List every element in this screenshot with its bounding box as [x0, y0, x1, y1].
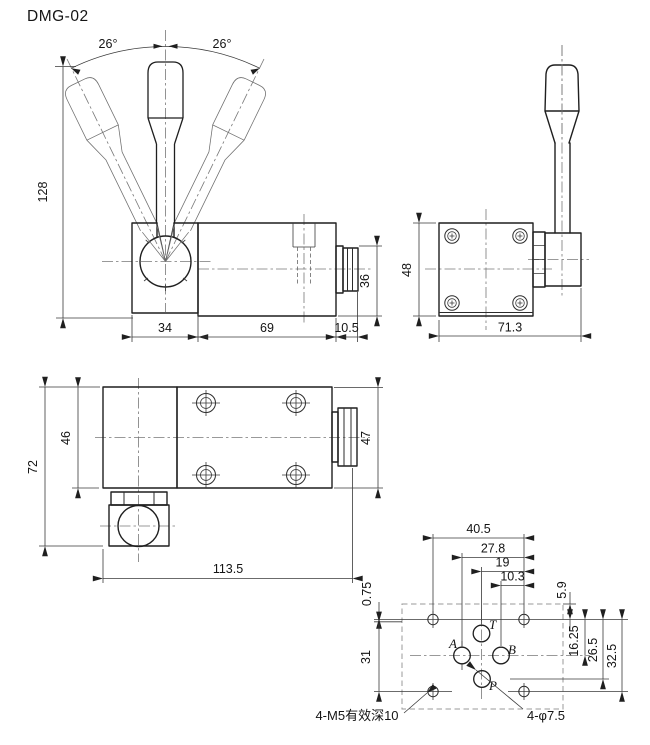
side-view-dimensions: 48 71.3 — [400, 223, 581, 342]
dim-34: 34 — [158, 321, 172, 335]
port-label-p: P — [488, 678, 497, 693]
dim-48: 48 — [400, 263, 414, 277]
dim-113-5: 113.5 — [213, 562, 243, 576]
port-holes: T A B P — [448, 617, 516, 693]
mounting-pattern: T A B P 40.5 27.8 19 10.3 0.75 31 5.9 — [315, 522, 628, 723]
bolt-hole — [282, 462, 310, 488]
bolt-hole — [282, 390, 310, 416]
dim-31: 31 — [359, 650, 373, 664]
dim-69: 69 — [260, 321, 274, 335]
dim-40-5: 40.5 — [466, 522, 490, 536]
side-view-outline — [439, 45, 581, 316]
dim-19: 19 — [496, 556, 510, 570]
dim-47: 47 — [359, 431, 373, 445]
dim-10-3: 10.3 — [500, 570, 524, 584]
angle-label-left: 26° — [99, 37, 118, 51]
top-view-bolt-holes — [192, 390, 310, 488]
drawing-title: DMG-02 — [27, 8, 89, 25]
pattern-top-dimensions: 40.5 27.8 19 10.3 — [433, 522, 525, 646]
side-view-centerlines — [425, 45, 589, 330]
pattern-left-dimensions: 0.75 31 — [359, 582, 379, 692]
valve-drawing-canvas: DMG-02 — [0, 0, 650, 745]
port-label-a: A — [448, 636, 457, 651]
dim-32-5: 32.5 — [605, 644, 619, 668]
technical-drawing-page: DMG-02 — [0, 0, 650, 745]
front-view-centerlines — [67, 30, 372, 325]
bolt-bottom-left — [445, 296, 459, 310]
dim-27-8: 27.8 — [481, 542, 505, 556]
note-port-holes: 4-φ7.5 — [527, 708, 565, 723]
dim-26-5: 26.5 — [586, 638, 600, 662]
port-label-t: T — [489, 617, 497, 632]
pattern-right-dimensions: 5.9 16.25 26.5 32.5 — [555, 581, 622, 691]
bolt-top-right — [513, 229, 527, 243]
side-view: 48 71.3 — [400, 45, 589, 342]
top-view-dimensions: 72 46 47 113.5 — [26, 387, 383, 583]
dim-36: 36 — [358, 274, 372, 288]
dim-10-5: 10.5 — [334, 321, 358, 335]
front-view: 26° 26° 128 34 69 10.5 36 — [36, 30, 382, 342]
front-view-dimensions: 128 34 69 10.5 36 — [36, 67, 382, 343]
dim-128: 128 — [36, 182, 50, 203]
pattern-notes: 4-M5有效深10 4-φ7.5 — [315, 670, 565, 723]
angle-label-right: 26° — [213, 37, 232, 51]
top-view-centerlines — [95, 378, 370, 562]
bolt-hole — [192, 462, 220, 488]
dim-5-9: 5.9 — [555, 581, 569, 598]
dim-0-75: 0.75 — [360, 582, 374, 606]
bolt-hole — [192, 390, 220, 416]
dim-72: 72 — [26, 460, 40, 474]
top-view: 72 46 47 113.5 — [26, 378, 383, 583]
dim-71-3: 71.3 — [498, 321, 522, 335]
bolt-top-left — [445, 229, 459, 243]
port-label-b: B — [508, 642, 516, 657]
dim-46: 46 — [59, 431, 73, 445]
top-view-outline — [103, 387, 357, 547]
note-mounting-holes: 4-M5有效深10 — [315, 708, 398, 723]
port-p — [474, 671, 491, 688]
bolt-bottom-right — [513, 296, 527, 310]
dim-16-25: 16.25 — [567, 625, 581, 656]
